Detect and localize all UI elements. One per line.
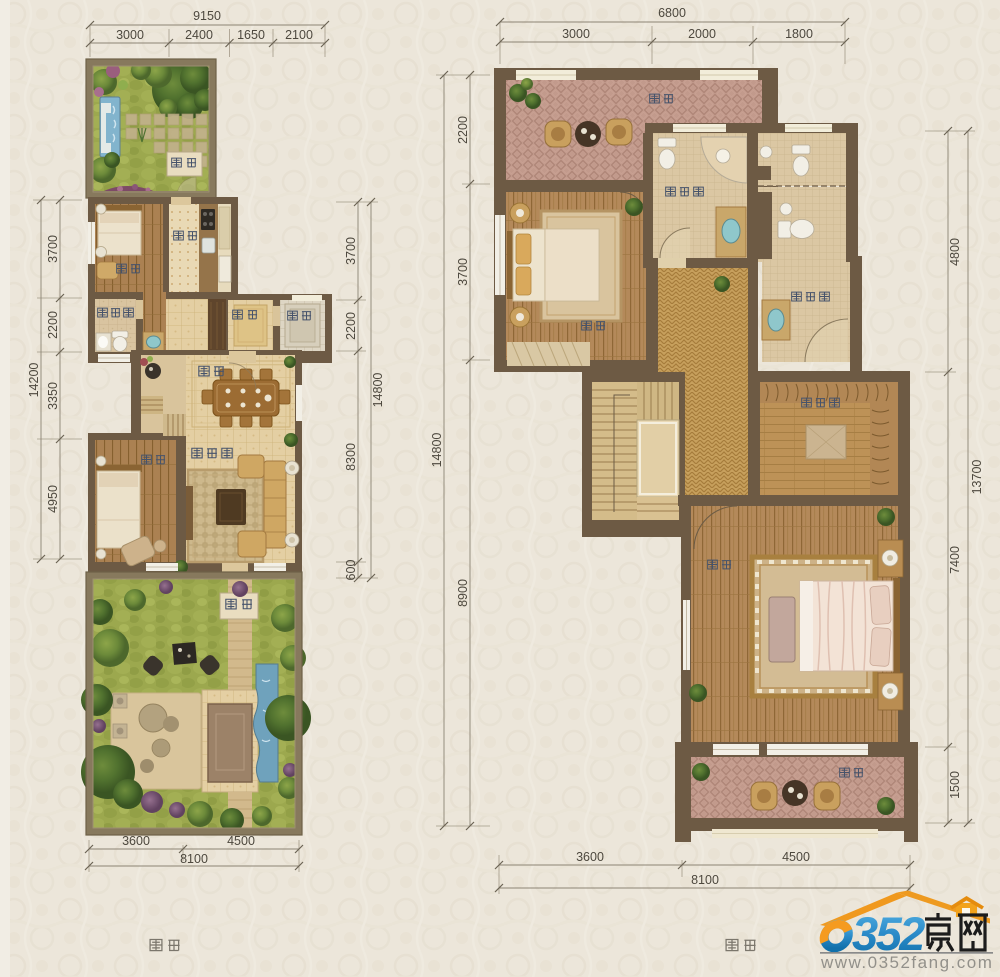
svg-text:14800: 14800 bbox=[371, 373, 385, 408]
svg-text:600: 600 bbox=[344, 560, 358, 581]
svg-text:3700: 3700 bbox=[344, 237, 358, 265]
svg-text:7400: 7400 bbox=[948, 546, 962, 574]
svg-text:1800: 1800 bbox=[785, 27, 813, 41]
svg-text:3000: 3000 bbox=[116, 28, 144, 42]
svg-text:9150: 9150 bbox=[193, 9, 221, 23]
svg-text:14200: 14200 bbox=[27, 363, 41, 398]
svg-text:3350: 3350 bbox=[46, 382, 60, 410]
svg-text:3000: 3000 bbox=[562, 27, 590, 41]
svg-text:2000: 2000 bbox=[688, 27, 716, 41]
svg-text:8300: 8300 bbox=[344, 443, 358, 471]
svg-text:8100: 8100 bbox=[180, 852, 208, 866]
svg-text:2100: 2100 bbox=[285, 28, 313, 42]
svg-text:3700: 3700 bbox=[456, 258, 470, 286]
svg-text:2200: 2200 bbox=[456, 116, 470, 144]
svg-text:4500: 4500 bbox=[782, 850, 810, 864]
svg-text:4500: 4500 bbox=[227, 834, 255, 848]
svg-text:2200: 2200 bbox=[46, 311, 60, 339]
svg-text:14800: 14800 bbox=[430, 433, 444, 468]
svg-text:1500: 1500 bbox=[948, 771, 962, 799]
svg-text:3600: 3600 bbox=[122, 834, 150, 848]
svg-text:3700: 3700 bbox=[46, 235, 60, 263]
svg-text:2400: 2400 bbox=[185, 28, 213, 42]
svg-text:6800: 6800 bbox=[658, 6, 686, 20]
svg-text:8900: 8900 bbox=[456, 579, 470, 607]
svg-text:1650: 1650 bbox=[237, 28, 265, 42]
svg-text:www.0352fang.com: www.0352fang.com bbox=[820, 953, 993, 972]
svg-text:4950: 4950 bbox=[46, 485, 60, 513]
svg-text:2200: 2200 bbox=[344, 312, 358, 340]
svg-text:3600: 3600 bbox=[576, 850, 604, 864]
svg-text:4800: 4800 bbox=[948, 238, 962, 266]
svg-text:13700: 13700 bbox=[970, 460, 984, 495]
svg-text:8100: 8100 bbox=[691, 873, 719, 887]
